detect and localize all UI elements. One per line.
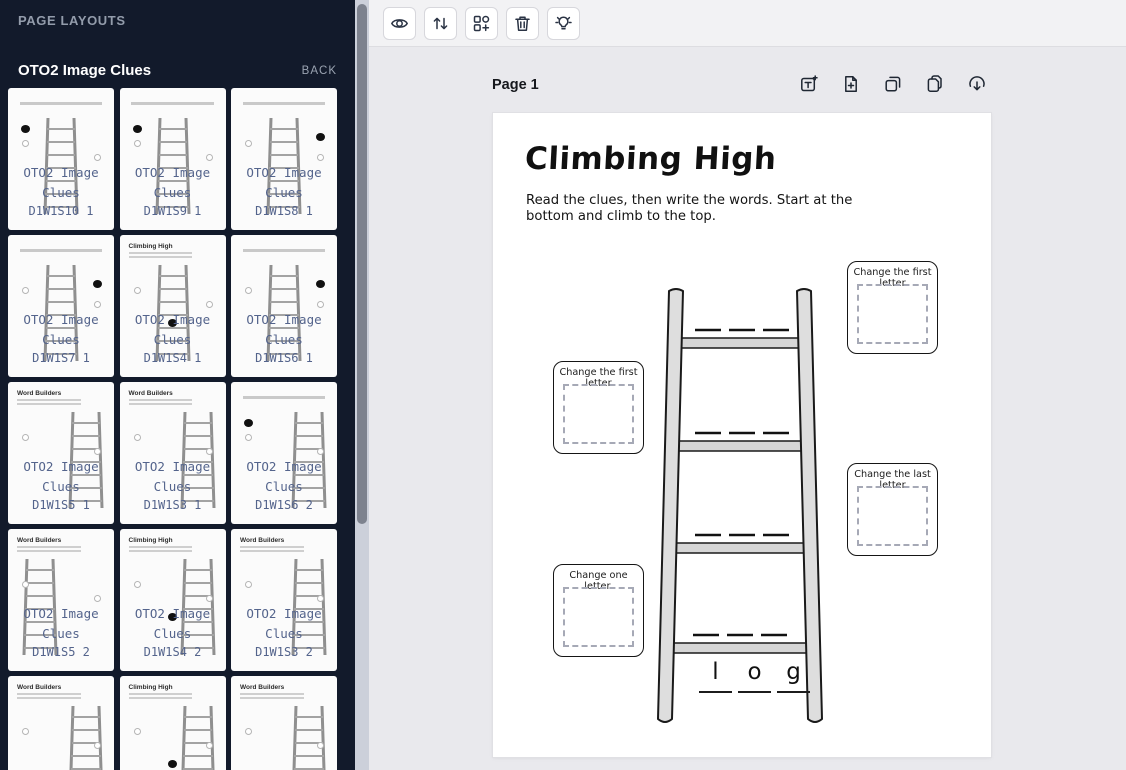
layout-thumbnail[interactable]: OTO2 ImageCluesD1W1S8 1 (231, 88, 337, 230)
clue-icon (206, 595, 213, 602)
layout-thumbnail[interactable]: OTO2 ImageCluesD1W1S6 2 (231, 382, 337, 524)
copy-pages-button[interactable] (924, 73, 946, 95)
thumbnail-headerline (243, 249, 326, 252)
clue-icon (21, 125, 30, 133)
mini-ladder-sketch (287, 704, 331, 770)
layout-thumbnail[interactable]: Word Builders (231, 676, 337, 770)
eye-icon (390, 14, 409, 33)
thumbnail-subtext (240, 693, 304, 701)
thumbnail-title: Word Builders (17, 684, 61, 691)
thumbnail-subtext (17, 693, 81, 701)
ideas-button[interactable] (547, 7, 580, 40)
mini-ladder-sketch (18, 557, 62, 657)
answer-word: l o g (699, 659, 810, 693)
grid-plus-icon (472, 14, 491, 33)
mini-ladder-sketch (287, 410, 331, 510)
layout-thumbnail-grid: OTO2 ImageCluesD1W1S10 1 OTO2 ImageCl (8, 88, 348, 770)
collection-title: OTO2 Image Clues (18, 62, 151, 79)
clue-icon (317, 154, 324, 161)
clue-icon (94, 154, 101, 161)
answer-letter[interactable]: g (777, 659, 810, 693)
layout-thumbnail[interactable]: Word Builders (8, 676, 114, 770)
thumbnail-title: Word Builders (17, 537, 61, 544)
clue-icon (316, 133, 325, 141)
add-page-button[interactable] (840, 73, 862, 95)
thumbnail-title: Word Builders (240, 684, 284, 691)
clue-icon (94, 301, 101, 308)
thumbnail-headerline (20, 249, 103, 252)
mini-ladder-sketch (176, 410, 220, 510)
clue-icon (134, 287, 141, 294)
lightbulb-icon (554, 14, 573, 33)
collection-row: OTO2 Image Clues BACK (0, 28, 355, 89)
trash-icon (513, 14, 532, 33)
clue-icon (206, 154, 213, 161)
add-elements-button[interactable] (465, 7, 498, 40)
thumbnail-title: Word Builders (240, 537, 284, 544)
layout-thumbnail[interactable]: OTO2 ImageCluesD1W1S6 1 (231, 235, 337, 377)
layout-thumbnail[interactable]: Climbing High (120, 676, 226, 770)
text-add-icon (799, 74, 819, 94)
clue-icon (22, 140, 29, 147)
thumbnail-title: Word Builders (17, 390, 61, 397)
back-button[interactable]: BACK (302, 65, 337, 77)
thumbnail-subtext (129, 693, 193, 701)
mini-ladder-sketch (64, 410, 108, 510)
layout-thumbnail[interactable]: Climbing High OTO2 ImageCluesD1W1S4 2 (120, 529, 226, 671)
thumbnail-subtext (17, 546, 81, 554)
clue-icon (245, 434, 252, 441)
thumbnail-subtext (129, 399, 193, 407)
worksheet-page: Climbing High Read the clues, then write… (493, 113, 991, 757)
clue-icon (317, 742, 324, 749)
clue-icon (244, 419, 253, 427)
clue-icon (245, 581, 252, 588)
mini-ladder-sketch (39, 116, 83, 216)
duplicate-page-button[interactable] (882, 73, 904, 95)
thumbnail-title: Climbing High (129, 243, 173, 250)
download-icon (967, 74, 987, 94)
mini-ladder-sketch (262, 116, 306, 216)
clue-icon (317, 595, 324, 602)
delete-button[interactable] (506, 7, 539, 40)
page-title: Page 1 (492, 77, 539, 93)
layout-thumbnail[interactable]: Word Builders OTO2 ImageCluesD1W1S3 1 (120, 382, 226, 524)
page-actions (798, 73, 988, 95)
layout-thumbnail[interactable]: Climbing High OTO2 ImageCluesD1W1S4 1 (120, 235, 226, 377)
mini-ladder-sketch (151, 116, 195, 216)
clue-icon (168, 613, 177, 621)
duplicate-icon (883, 74, 903, 94)
clue-icon (93, 280, 102, 288)
clue-icon (206, 742, 213, 749)
clue-icon (22, 728, 29, 735)
clue-icon (206, 448, 213, 455)
thumbnail-title: Word Builders (129, 390, 173, 397)
clue-box-left-bottom[interactable]: Change one letter. (553, 564, 644, 657)
clue-icon (134, 140, 141, 147)
clue-icon (134, 728, 141, 735)
layout-thumbnail[interactable]: OTO2 ImageCluesD1W1S7 1 (8, 235, 114, 377)
layout-thumbnail[interactable]: Word Builders OTO2 ImageCluesD1W1S3 2 (231, 529, 337, 671)
clue-image-placeholder (857, 486, 928, 546)
mini-ladder-sketch (176, 704, 220, 770)
page-canvas-area: Page 1 (369, 48, 1126, 770)
thumbnail-subtext (240, 546, 304, 554)
layout-thumbnail[interactable]: OTO2 ImageCluesD1W1S9 1 (120, 88, 226, 230)
mini-ladder-sketch (176, 557, 220, 657)
answer-letter[interactable]: l (699, 659, 732, 693)
page-add-icon (841, 74, 861, 94)
page-layouts-sidebar: PAGE LAYOUTS OTO2 Image Clues BACK (0, 0, 355, 770)
mini-ladder-sketch (287, 557, 331, 657)
clue-icon (317, 301, 324, 308)
thumbnail-headerline (20, 102, 103, 105)
add-text-button[interactable] (798, 73, 820, 95)
worksheet-instructions[interactable]: Read the clues, then write the words. St… (526, 193, 862, 225)
mini-ladder-sketch (262, 263, 306, 363)
worksheet-title[interactable]: Climbing High (524, 141, 777, 177)
thumbnail-subtext (17, 399, 81, 407)
clue-icon (134, 434, 141, 441)
answer-letter[interactable]: o (738, 659, 771, 693)
pages-icon (925, 74, 945, 94)
clue-icon (245, 287, 252, 294)
editor-toolbar (369, 0, 1126, 47)
clue-box-right-top[interactable]: Change the first letter (847, 261, 938, 354)
clue-icon (316, 280, 325, 288)
thumbnail-headerline (243, 396, 326, 399)
mini-ladder-sketch (39, 263, 83, 363)
sidebar-header: PAGE LAYOUTS (0, 0, 355, 28)
mini-ladder-sketch (151, 263, 195, 363)
clue-icon (133, 125, 142, 133)
thumbnail-title: Climbing High (129, 537, 173, 544)
clue-icon (168, 760, 177, 768)
clue-box-right-middle[interactable]: Change the last letter (847, 463, 938, 556)
reorder-button[interactable] (424, 7, 457, 40)
thumbnail-subtext (129, 546, 193, 554)
main-area: Page 1 (369, 0, 1126, 770)
clue-icon (22, 287, 29, 294)
clue-icon (206, 301, 213, 308)
layout-thumbnail[interactable]: Word Builders OTO2 ImageCluesD1W1S5 1 (8, 382, 114, 524)
clue-icon (168, 319, 177, 327)
clue-icon (317, 448, 324, 455)
layout-thumbnail[interactable]: Word Builders OTO2 ImageCluesD1W1S5 2 (8, 529, 114, 671)
clue-icon (245, 728, 252, 735)
app-window: PAGE LAYOUTS OTO2 Image Clues BACK (0, 0, 1126, 770)
sort-arrows-icon (431, 14, 450, 33)
clue-box-left-top[interactable]: Change the first letter (553, 361, 644, 454)
clue-image-placeholder (857, 284, 928, 344)
clue-image-placeholder (563, 384, 634, 444)
sidebar-scrollbar-thumb[interactable] (357, 4, 367, 524)
thumbnail-headerline (243, 102, 326, 105)
thumbnail-subtext (129, 252, 193, 260)
clue-icon (94, 448, 101, 455)
clue-icon (22, 434, 29, 441)
clue-image-placeholder (563, 587, 634, 647)
clue-icon (94, 595, 101, 602)
clue-icon (22, 581, 29, 588)
mini-ladder-sketch (64, 704, 108, 770)
clue-icon (94, 742, 101, 749)
layout-thumbnail[interactable]: OTO2 ImageCluesD1W1S10 1 (8, 88, 114, 230)
clue-icon (245, 140, 252, 147)
download-button[interactable] (966, 73, 988, 95)
thumbnail-title: Climbing High (129, 684, 173, 691)
clue-icon (134, 581, 141, 588)
preview-button[interactable] (383, 7, 416, 40)
thumbnail-headerline (131, 102, 214, 105)
